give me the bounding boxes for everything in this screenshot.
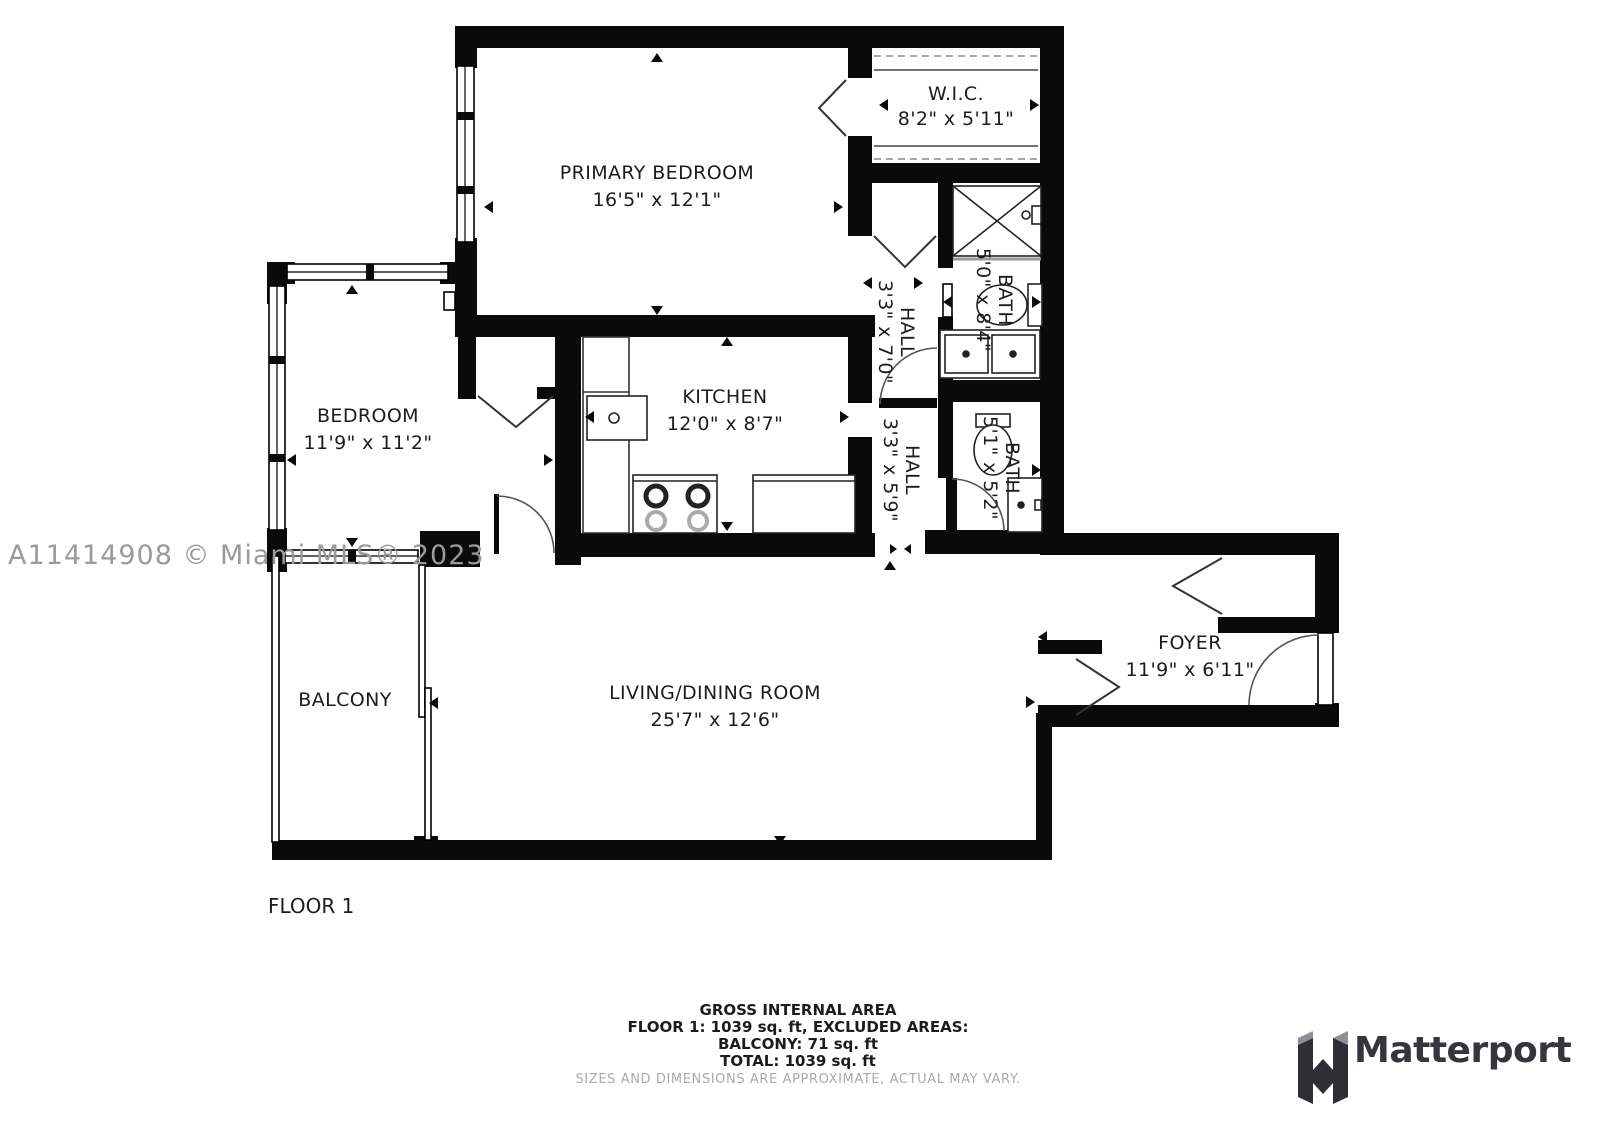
label-kitchen: KITCHEN <box>682 386 767 408</box>
fixtures <box>583 186 1042 533</box>
balcony-slider-panel-a <box>419 565 425 717</box>
window-dividers <box>269 112 474 563</box>
balcony-slider-panel-b <box>425 688 431 840</box>
label-bedroom-dims: 11'9" x 11'2" <box>304 432 433 454</box>
label-bath-lower-dims: 5'1" x 5'2" <box>979 416 1001 520</box>
matterport-branding: Matterport <box>1292 1030 1571 1071</box>
shower-valve <box>1032 206 1041 224</box>
hall-closet-chevron <box>874 236 936 267</box>
matterport-logo-text: Matterport <box>1354 1030 1571 1071</box>
total-area: TOTAL: 1039 sq. ft <box>576 1053 1021 1070</box>
window-mullions <box>277 66 465 556</box>
label-bedroom: BEDROOM <box>317 405 419 427</box>
label-living-dining-dims: 25'7" x 12'6" <box>651 709 780 731</box>
label-bath-upper: BATH <box>994 274 1016 326</box>
disclaimer-text: SIZES AND DIMENSIONS ARE APPROXIMATE, AC… <box>576 1072 1021 1087</box>
bedroom-door-arc <box>497 496 554 553</box>
floor1-area: FLOOR 1: 1039 sq. ft, EXCLUDED AREAS: <box>576 1019 1021 1036</box>
label-bath-upper-dims: 5'0" x 8'4" <box>972 248 994 352</box>
mls-watermark: A11414908 © Miami MLS® 2023 <box>8 540 485 571</box>
shower-knob <box>1022 211 1030 219</box>
label-hall-lower-dims: 3'3" x 5'9" <box>879 418 901 522</box>
wall-panel-box <box>444 292 455 310</box>
gross-area-title: GROSS INTERNAL AREA <box>576 1002 1021 1019</box>
foyer-closet-chevron <box>1173 558 1222 614</box>
label-balcony: BALCONY <box>298 689 391 711</box>
burner <box>688 486 708 506</box>
label-kitchen-dims: 12'0" x 8'7" <box>667 413 784 435</box>
floor-plan-page: PRIMARY BEDROOM 16'5" x 12'1" W.I.C. 8'2… <box>0 0 1600 1130</box>
label-wic: W.I.C. <box>928 83 984 105</box>
burner <box>689 512 707 530</box>
label-primary-bedroom: PRIMARY BEDROOM <box>560 162 754 184</box>
room-labels: PRIMARY BEDROOM 16'5" x 12'1" W.I.C. 8'2… <box>298 83 1254 731</box>
burner <box>647 512 665 530</box>
label-primary-bedroom-dims: 16'5" x 12'1" <box>593 189 722 211</box>
balcony-area: BALCONY: 71 sq. ft <box>576 1036 1021 1053</box>
area-summary: GROSS INTERNAL AREA FLOOR 1: 1039 sq. ft… <box>576 1002 1021 1087</box>
balcony-rail-left <box>272 556 279 842</box>
entry-door-arc <box>1249 635 1319 705</box>
entry-door-leaf <box>1318 633 1333 705</box>
label-hall-upper-dims: 3'3" x 7'0" <box>874 280 896 384</box>
label-hall-lower: HALL <box>901 445 923 495</box>
floor-number-label: FLOOR 1 <box>268 894 354 918</box>
kitchen-faucet <box>609 413 619 423</box>
wic-door-chevron <box>819 80 846 136</box>
kitchen-counter-right <box>753 475 855 533</box>
bedroom-closet-chevron <box>478 396 553 427</box>
label-living-dining: LIVING/DINING ROOM <box>609 682 821 704</box>
label-foyer-dims: 11'9" x 6'11" <box>1126 659 1255 681</box>
burner <box>646 486 666 506</box>
label-wic-dims: 8'2" x 5'11" <box>898 108 1015 130</box>
label-foyer: FOYER <box>1158 632 1222 654</box>
label-bath-lower: BATH <box>1001 442 1023 494</box>
label-hall-upper: HALL <box>896 307 918 357</box>
